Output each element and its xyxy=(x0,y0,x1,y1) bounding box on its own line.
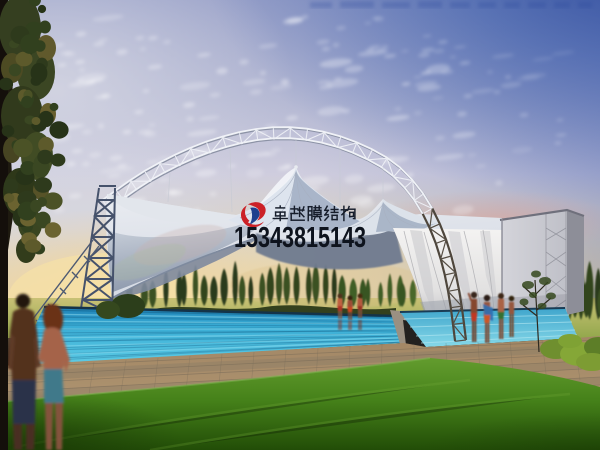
svg-text:15343815143: 15343815143 xyxy=(234,222,366,254)
